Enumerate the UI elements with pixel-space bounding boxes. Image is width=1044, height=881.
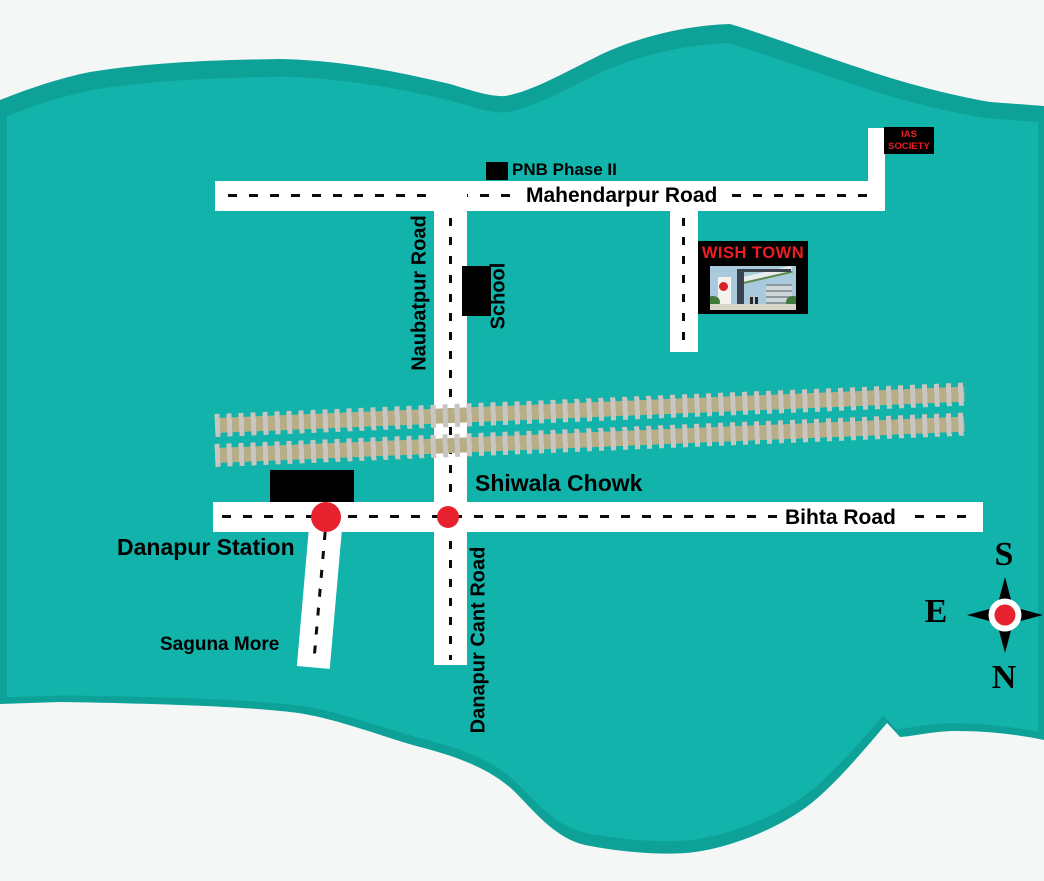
compass-center-dot — [995, 605, 1016, 626]
ias-society-line1: IAS — [884, 129, 934, 141]
danapur-station-label: Danapur Station — [117, 534, 295, 561]
gate-tower-icon — [737, 269, 745, 306]
danapur-station-building — [270, 470, 354, 502]
compass-south-label: S — [995, 536, 1014, 574]
wish-town-sign: WISH TOWN — [698, 241, 808, 314]
ias-society-access-road — [868, 128, 885, 183]
wishtown-photo — [710, 266, 796, 310]
shiwala-chowk-label: Shiwala Chowk — [475, 470, 642, 497]
pnb-marker — [486, 162, 508, 180]
danapur-station-junction-dot — [311, 502, 341, 532]
saguna-more-road-centerline — [312, 532, 326, 664]
ground-strip — [710, 304, 796, 310]
location-map: IAS SOCIETY WISH TOWN PNB Phase II Mahen… — [0, 0, 1044, 881]
pnb-phase2-label: PNB Phase II — [512, 160, 617, 180]
ias-society-line2: SOCIETY — [884, 141, 934, 153]
danapur-cant-road-label: Danapur Cant Road — [468, 547, 491, 734]
bihta-road-label: Bihta Road — [777, 504, 904, 531]
gate-beam-icon — [737, 269, 791, 272]
compass-east-label: E — [925, 593, 948, 631]
wish-town-label: WISH TOWN — [698, 244, 808, 263]
naubatpur-road-label: Naubatpur Road — [409, 215, 432, 371]
saguna-more-label: Saguna More — [160, 634, 279, 656]
mahendarpur-road-label: Mahendarpur Road — [518, 182, 725, 210]
wishtown-access-road-centerline — [682, 218, 685, 346]
ias-society-sign: IAS SOCIETY — [884, 127, 934, 154]
compass-north-label: N — [992, 659, 1017, 697]
school-label: School — [488, 263, 511, 330]
shiwala-chowk-junction-dot — [437, 506, 459, 528]
